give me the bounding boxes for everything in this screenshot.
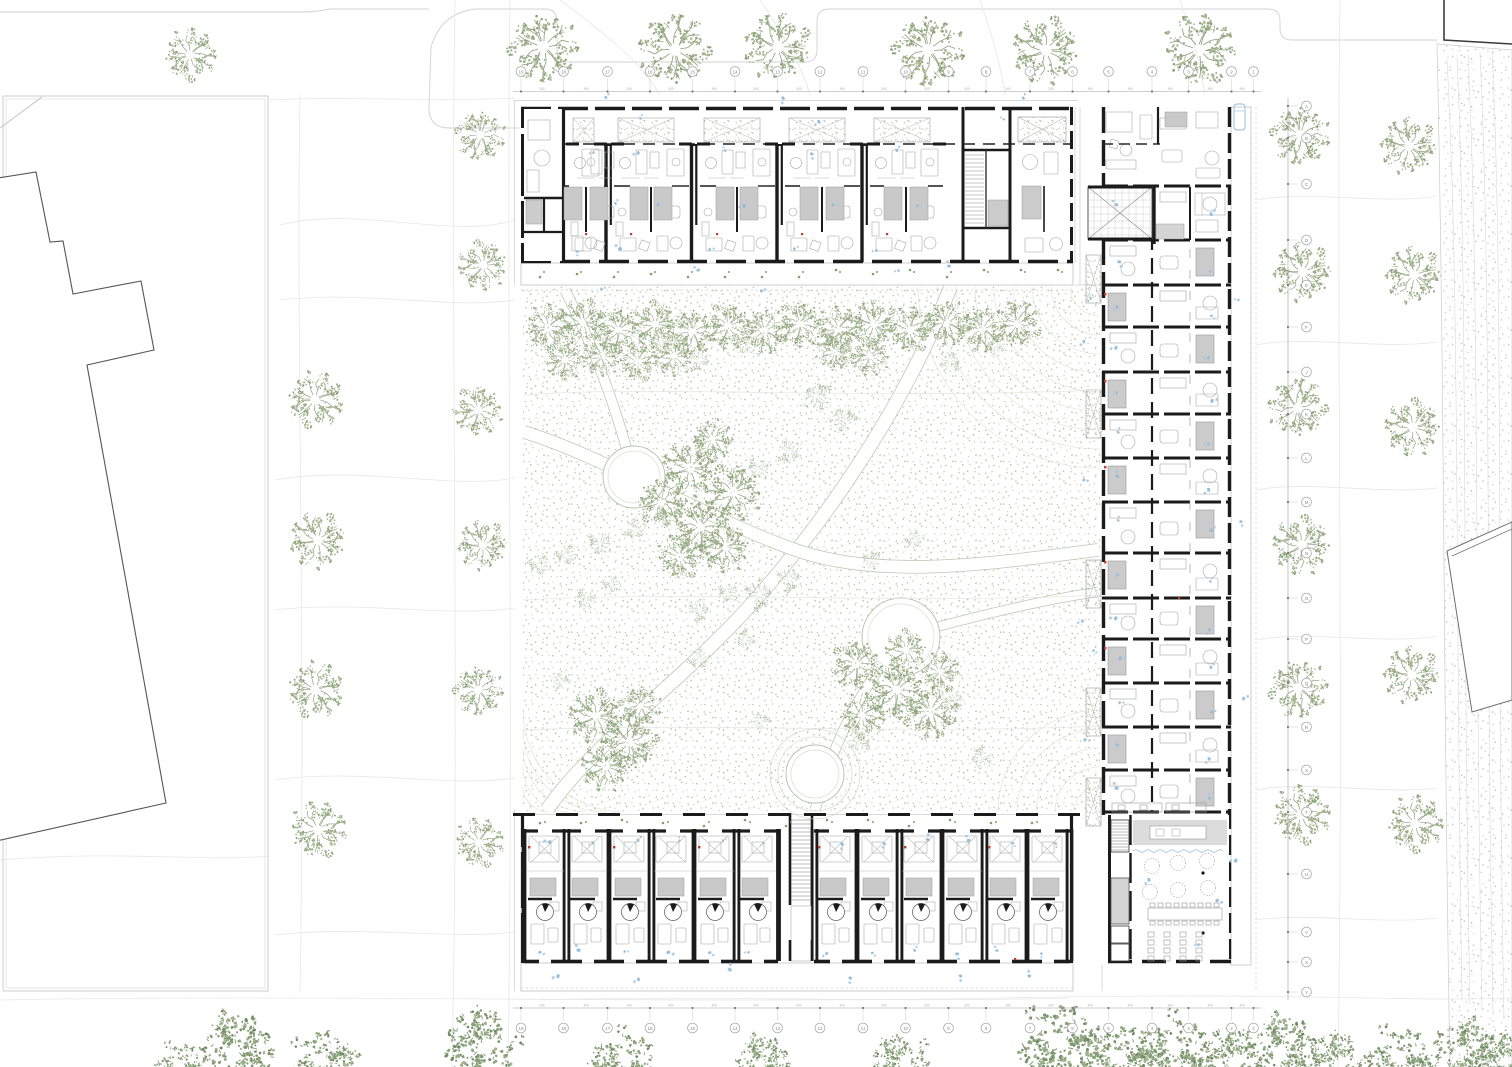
svg-text:340: 340	[626, 1004, 632, 1008]
svg-text:12: 12	[817, 1026, 823, 1031]
svg-text:S: S	[1305, 768, 1308, 773]
svg-text:10: 10	[903, 1026, 909, 1031]
svg-text:19: 19	[518, 1026, 524, 1031]
svg-text:340: 340	[1239, 1004, 1245, 1008]
svg-text:T: T	[1305, 810, 1308, 815]
svg-text:17: 17	[605, 69, 611, 74]
svg-text:15: 15	[690, 69, 696, 74]
svg-text:340: 340	[796, 87, 802, 91]
svg-text:4: 4	[1151, 1026, 1154, 1031]
svg-text:15: 15	[690, 1026, 696, 1031]
svg-text:340: 340	[753, 87, 759, 91]
svg-text:340: 340	[539, 87, 545, 91]
svg-text:7: 7	[1029, 69, 1032, 74]
svg-text:12: 12	[817, 69, 823, 74]
svg-text:3: 3	[1187, 1026, 1190, 1031]
svg-text:340: 340	[1005, 87, 1011, 91]
svg-text:340: 340	[1127, 87, 1133, 91]
svg-text:340: 340	[881, 87, 887, 91]
svg-text:340: 340	[924, 87, 930, 91]
svg-text:4: 4	[1151, 69, 1154, 74]
svg-text:340: 340	[1207, 87, 1213, 91]
svg-text:14: 14	[732, 1026, 738, 1031]
svg-text:340: 340	[583, 87, 589, 91]
svg-text:13: 13	[775, 69, 781, 74]
svg-text:16: 16	[647, 69, 653, 74]
svg-text:7: 7	[1029, 1026, 1032, 1031]
svg-text:340: 340	[839, 87, 845, 91]
svg-text:340: 340	[539, 1004, 545, 1008]
svg-text:B: B	[1305, 136, 1308, 141]
svg-text:2: 2	[1230, 69, 1233, 74]
svg-text:19: 19	[518, 69, 524, 74]
svg-text:3: 3	[1187, 69, 1190, 74]
svg-text:5: 5	[1107, 1026, 1110, 1031]
svg-text:X: X	[1305, 960, 1308, 965]
svg-text:6: 6	[1071, 69, 1074, 74]
svg-text:2: 2	[1230, 1026, 1233, 1031]
svg-text:M: M	[1305, 500, 1309, 505]
svg-text:11: 11	[861, 1026, 866, 1031]
svg-text:340: 340	[1207, 1004, 1213, 1008]
svg-text:340: 340	[1239, 87, 1245, 91]
svg-text:N: N	[1305, 551, 1308, 556]
svg-text:340: 340	[668, 87, 674, 91]
svg-text:13: 13	[775, 1026, 781, 1031]
svg-text:Q: Q	[1305, 681, 1309, 686]
svg-text:16: 16	[647, 1026, 653, 1031]
svg-text:O: O	[1305, 596, 1309, 601]
svg-text:9: 9	[947, 69, 950, 74]
svg-text:J: J	[1305, 370, 1307, 375]
svg-text:340: 340	[1087, 1004, 1093, 1008]
svg-text:340: 340	[711, 87, 717, 91]
svg-text:340: 340	[1048, 1004, 1054, 1008]
svg-text:U: U	[1305, 872, 1308, 877]
svg-text:P: P	[1305, 637, 1308, 642]
svg-text:17: 17	[605, 1026, 611, 1031]
svg-text:L: L	[1305, 456, 1308, 461]
svg-text:340: 340	[924, 1004, 930, 1008]
svg-text:340: 340	[1087, 87, 1093, 91]
svg-text:340: 340	[1127, 1004, 1133, 1008]
svg-text:340: 340	[796, 1004, 802, 1008]
svg-text:340: 340	[1167, 87, 1173, 91]
svg-text:14: 14	[732, 69, 738, 74]
svg-text:5: 5	[1107, 69, 1110, 74]
svg-text:340: 340	[964, 1004, 970, 1008]
svg-text:340: 340	[1167, 1004, 1173, 1008]
svg-text:340: 340	[626, 87, 632, 91]
svg-text:10: 10	[903, 69, 909, 74]
svg-text:Y: Y	[1305, 990, 1308, 995]
svg-text:340: 340	[753, 1004, 759, 1008]
svg-text:1: 1	[1252, 69, 1255, 74]
svg-text:340: 340	[583, 1004, 589, 1008]
svg-text:9: 9	[947, 1026, 950, 1031]
svg-text:340: 340	[711, 1004, 717, 1008]
svg-text:340: 340	[839, 1004, 845, 1008]
svg-text:340: 340	[881, 1004, 887, 1008]
svg-text:8: 8	[985, 1026, 988, 1031]
svg-text:340: 340	[668, 1004, 674, 1008]
svg-text:340: 340	[1048, 87, 1054, 91]
svg-text:E: E	[1305, 283, 1308, 288]
svg-text:6: 6	[1071, 1026, 1074, 1031]
svg-text:11: 11	[861, 69, 866, 74]
svg-text:1: 1	[1252, 1026, 1255, 1031]
svg-text:340: 340	[1005, 1004, 1011, 1008]
svg-text:8: 8	[985, 69, 988, 74]
svg-text:18: 18	[561, 69, 567, 74]
svg-text:340: 340	[964, 87, 970, 91]
svg-text:18: 18	[561, 1026, 567, 1031]
svg-text:F: F	[1305, 325, 1308, 330]
